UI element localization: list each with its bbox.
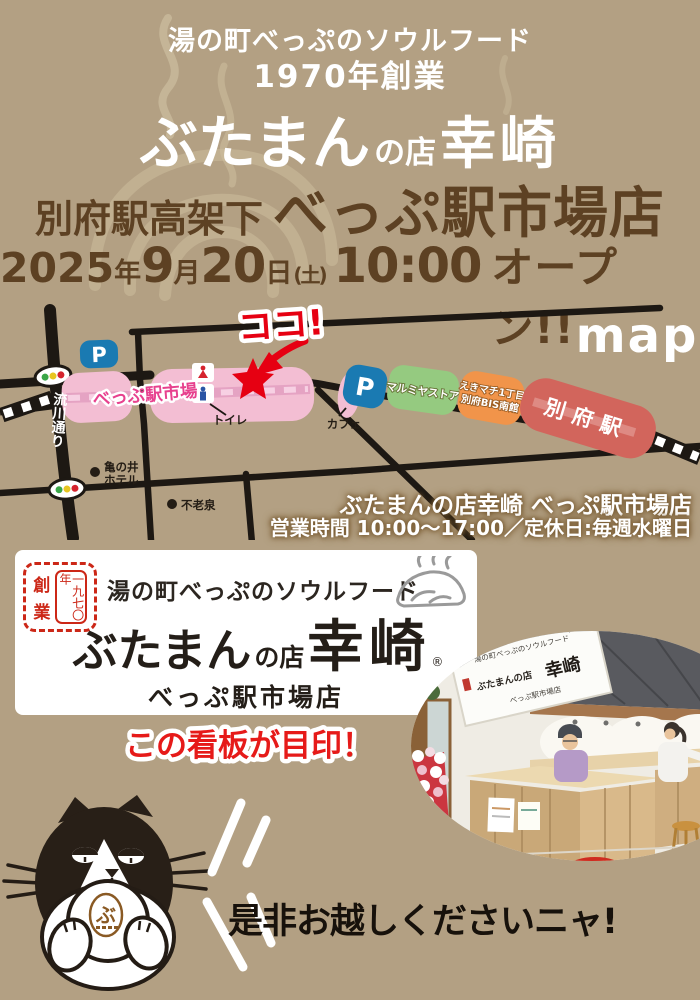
header-established: 1970年創業: [0, 62, 700, 93]
shop-photo: 湯の町べっぷのソウルフード ぶたまんの店 幸崎 べっぷ駅市場店: [410, 630, 700, 870]
sign-brand: ぶたまん の店 幸崎 ®: [43, 602, 473, 683]
cat-message: 是非お越しくださいニャ!: [228, 893, 617, 944]
signboard: 創 業 一九七〇年 湯の町べっぷのソウルフード ぶたまん の店 幸崎 ® べっぷ…: [15, 550, 477, 715]
open-month: 9: [141, 238, 173, 294]
open-month-unit: 月: [174, 251, 201, 290]
svg-text:P: P: [91, 343, 107, 368]
open-time: 10:00: [334, 238, 482, 294]
sign-store-name: べっぷ駅市場店: [15, 678, 477, 714]
shop-info-line2: 営業時間 10:00〜17:00／定休日:毎週水曜日: [270, 512, 692, 541]
caption-text: この看板が目印！: [125, 728, 373, 764]
caption: この看板が目印！: [84, 716, 414, 774]
open-weekday: (土): [293, 259, 325, 288]
cat-eye: [118, 848, 144, 864]
flyer: 湯の町べっぷのソウルフード 1970年創業 ぶたまん の店 幸崎 別府駅高架下 …: [0, 0, 700, 1000]
hotel-label-2: ホテル: [104, 473, 139, 487]
toilet-label: トイレ: [213, 413, 248, 427]
open-year-unit: 年: [114, 251, 141, 290]
spring-label: 不老泉: [181, 498, 216, 512]
seal-char-top: 創: [33, 571, 50, 596]
open-day: 20: [201, 238, 266, 294]
brand-mid: の店: [374, 127, 436, 172]
beppu-station: 別府駅: [514, 372, 662, 464]
marumiya-store: マルミヤストア: [384, 363, 463, 417]
cat-eye: [72, 847, 98, 863]
open-day-unit: 日: [265, 251, 292, 290]
map-corner-label: map: [576, 308, 699, 364]
stool: [672, 821, 700, 854]
sign-brand-main: ぶたまん: [73, 614, 252, 679]
open-year: 2025: [0, 244, 114, 292]
spring-dot: [167, 499, 177, 509]
parking-icon: P: [80, 339, 119, 368]
bun-stamp-char: ぶ: [95, 903, 116, 927]
here-label: ココ!: [237, 303, 326, 349]
header-tagline: 湯の町べっぷのソウルフード: [0, 28, 700, 55]
bun-stamp: ぶ: [90, 894, 122, 936]
hotel-label-1: 亀の井: [104, 460, 139, 474]
traffic-light-icon: [48, 477, 86, 500]
ekimachi-building: えきマチ1丁目 別府BIS南館: [454, 369, 528, 428]
hotel-dot: [90, 467, 100, 477]
cafe-label: カフェ: [327, 417, 362, 431]
sign-brand-mid: の店: [254, 638, 304, 674]
sign-tagline: 湯の町べっぷのソウルフード: [107, 572, 419, 606]
